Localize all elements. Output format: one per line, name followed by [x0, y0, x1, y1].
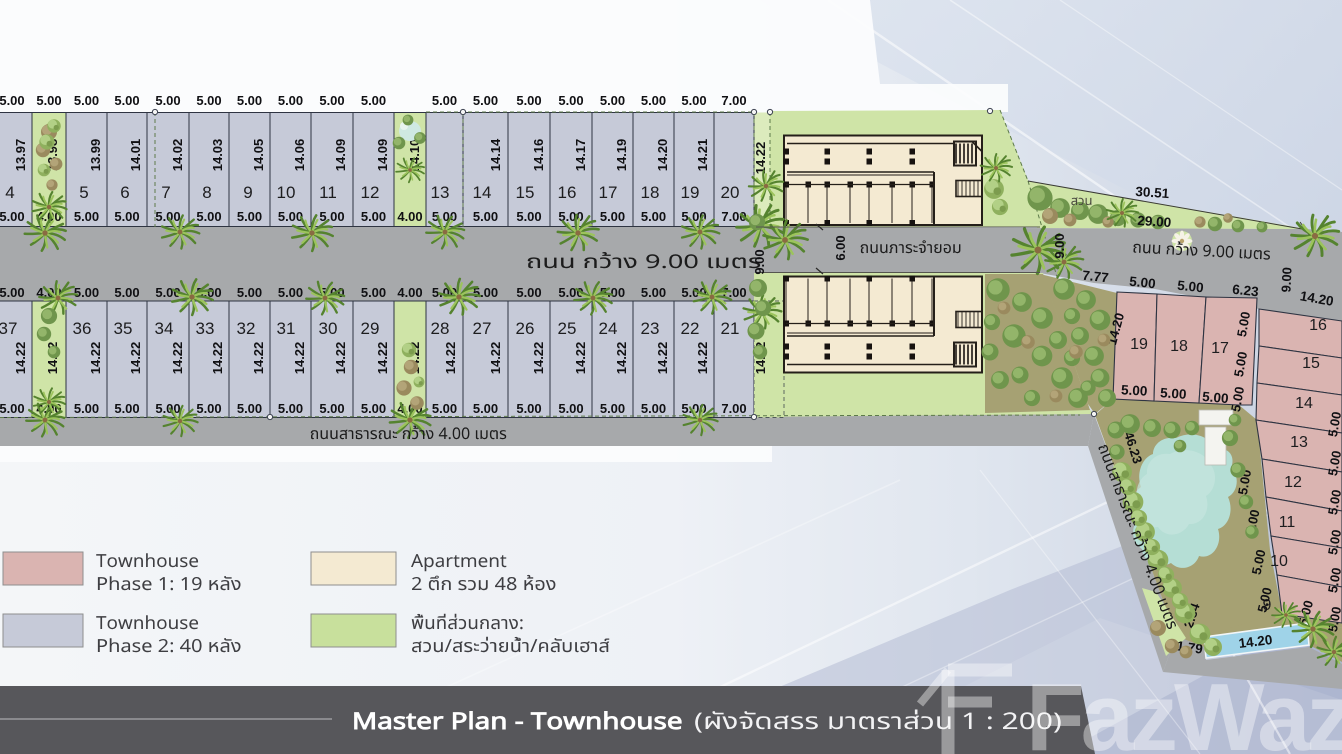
svg-text:11: 11: [319, 183, 337, 202]
svg-text:5.00: 5.00: [278, 285, 303, 300]
svg-text:14.14: 14.14: [488, 138, 503, 171]
svg-text:6.00: 6.00: [833, 235, 848, 260]
svg-text:5.00: 5.00: [361, 401, 386, 416]
svg-text:5.00: 5.00: [473, 93, 498, 108]
svg-text:5.00: 5.00: [361, 285, 386, 300]
svg-text:14.09: 14.09: [333, 139, 348, 172]
svg-text:30: 30: [319, 319, 338, 338]
svg-text:32: 32: [237, 319, 256, 338]
svg-text:5.00: 5.00: [74, 401, 99, 416]
svg-text:5.00: 5.00: [196, 401, 221, 416]
svg-text:14.02: 14.02: [170, 139, 185, 172]
svg-text:5.00: 5.00: [114, 209, 139, 224]
svg-text:5.00: 5.00: [237, 209, 262, 224]
svg-text:5.00: 5.00: [196, 93, 221, 108]
svg-text:6.23: 6.23: [1232, 282, 1260, 300]
svg-text:16: 16: [1309, 317, 1327, 334]
svg-text:5.00: 5.00: [432, 209, 457, 224]
svg-text:5.00: 5.00: [74, 209, 99, 224]
svg-text:9.00: 9.00: [752, 249, 767, 274]
svg-text:5.00: 5.00: [558, 401, 583, 416]
svg-text:5.00: 5.00: [114, 285, 139, 300]
svg-text:7.00: 7.00: [721, 93, 746, 108]
svg-text:14.22: 14.22: [443, 342, 458, 375]
svg-text:14.22: 14.22: [573, 342, 588, 375]
svg-text:5.00: 5.00: [516, 209, 541, 224]
svg-text:17: 17: [599, 183, 618, 202]
svg-text:29.00: 29.00: [1137, 213, 1172, 230]
svg-text:5.00: 5.00: [155, 209, 180, 224]
svg-text:5.00: 5.00: [319, 401, 344, 416]
svg-text:5.00: 5.00: [0, 285, 25, 300]
svg-text:5.00: 5.00: [641, 285, 666, 300]
svg-text:19: 19: [1130, 336, 1148, 353]
svg-text:12: 12: [1284, 474, 1302, 491]
svg-text:5.00: 5.00: [516, 93, 541, 108]
svg-text:10: 10: [277, 183, 296, 202]
svg-text:5.00: 5.00: [516, 401, 541, 416]
svg-text:30.51: 30.51: [1135, 184, 1170, 201]
svg-text:13.99: 13.99: [88, 139, 103, 172]
svg-text:14.22: 14.22: [292, 342, 307, 375]
svg-text:6: 6: [120, 183, 129, 202]
svg-text:14.22: 14.22: [695, 342, 710, 375]
svg-text:14.22: 14.22: [655, 342, 670, 375]
svg-text:27: 27: [473, 319, 492, 338]
svg-text:5.00: 5.00: [1202, 389, 1229, 406]
svg-text:14.22: 14.22: [88, 342, 103, 375]
svg-text:5.00: 5.00: [237, 285, 262, 300]
svg-text:18: 18: [641, 183, 660, 202]
svg-text:36: 36: [73, 319, 92, 338]
svg-text:24: 24: [599, 319, 618, 338]
svg-text:5.00: 5.00: [1160, 385, 1187, 402]
svg-text:19: 19: [681, 183, 700, 202]
svg-text:5.00: 5.00: [681, 93, 706, 108]
svg-text:14.20: 14.20: [655, 139, 670, 172]
svg-text:5.00: 5.00: [600, 209, 625, 224]
svg-text:7.77: 7.77: [1082, 268, 1110, 286]
svg-text:14: 14: [1295, 395, 1313, 412]
svg-text:5.00: 5.00: [641, 93, 666, 108]
svg-text:29: 29: [361, 319, 380, 338]
svg-text:4.00: 4.00: [397, 285, 422, 300]
svg-text:12: 12: [361, 183, 380, 202]
svg-text:5.00: 5.00: [237, 401, 262, 416]
svg-text:5.00: 5.00: [641, 209, 666, 224]
svg-text:5.00: 5.00: [558, 93, 583, 108]
svg-text:5.00: 5.00: [0, 401, 25, 416]
svg-text:5.00: 5.00: [319, 93, 344, 108]
svg-text:13: 13: [431, 183, 450, 202]
svg-text:9: 9: [243, 183, 252, 202]
svg-text:5.00: 5.00: [600, 401, 625, 416]
svg-text:5.00: 5.00: [0, 93, 25, 108]
svg-text:5.00: 5.00: [237, 93, 262, 108]
svg-text:5.00: 5.00: [278, 209, 303, 224]
svg-text:5.00: 5.00: [74, 285, 99, 300]
svg-text:5.00: 5.00: [1121, 382, 1148, 398]
svg-text:35: 35: [114, 319, 133, 338]
svg-text:5.00: 5.00: [36, 93, 61, 108]
svg-text:20: 20: [721, 183, 740, 202]
svg-text:5.00: 5.00: [473, 401, 498, 416]
svg-text:5.00: 5.00: [516, 285, 541, 300]
svg-text:14.22: 14.22: [375, 342, 390, 375]
svg-text:14.21: 14.21: [695, 139, 710, 172]
svg-text:14.22: 14.22: [170, 342, 185, 375]
svg-text:5.00: 5.00: [278, 401, 303, 416]
svg-text:14: 14: [473, 183, 492, 202]
svg-text:33: 33: [196, 319, 215, 338]
svg-text:5.00: 5.00: [114, 93, 139, 108]
svg-text:14.17: 14.17: [573, 139, 588, 172]
svg-text:14.09: 14.09: [375, 139, 390, 172]
svg-text:5.00: 5.00: [473, 209, 498, 224]
svg-text:5.00: 5.00: [361, 209, 386, 224]
svg-text:14.22: 14.22: [251, 342, 266, 375]
svg-text:14.06: 14.06: [292, 139, 307, 172]
svg-text:5.00: 5.00: [432, 93, 457, 108]
svg-text:5.00: 5.00: [0, 209, 25, 224]
svg-text:5.00: 5.00: [74, 93, 99, 108]
svg-text:5.00: 5.00: [114, 401, 139, 416]
svg-text:31: 31: [277, 319, 296, 338]
svg-text:14.03: 14.03: [210, 139, 225, 172]
svg-text:14.01: 14.01: [128, 139, 143, 172]
svg-text:34: 34: [155, 319, 174, 338]
svg-text:18: 18: [1170, 338, 1188, 355]
svg-text:28: 28: [431, 319, 450, 338]
svg-text:9.00: 9.00: [1052, 233, 1067, 258]
svg-text:14.22: 14.22: [488, 342, 503, 375]
svg-text:5.00: 5.00: [319, 209, 344, 224]
svg-text:5.00: 5.00: [278, 93, 303, 108]
svg-text:15: 15: [516, 183, 535, 202]
svg-text:5.00: 5.00: [361, 93, 386, 108]
svg-text:FazWaz: FazWaz: [1026, 664, 1342, 754]
svg-text:5.00: 5.00: [600, 93, 625, 108]
svg-text:26: 26: [516, 319, 535, 338]
svg-text:5.00: 5.00: [432, 401, 457, 416]
svg-text:14.22: 14.22: [13, 342, 28, 375]
svg-text:16: 16: [558, 183, 577, 202]
svg-text:14.22: 14.22: [531, 342, 546, 375]
svg-text:5.00: 5.00: [641, 401, 666, 416]
svg-text:21: 21: [721, 319, 740, 338]
svg-text:5.00: 5.00: [1177, 278, 1205, 296]
svg-text:23: 23: [641, 319, 660, 338]
svg-text:14.22: 14.22: [333, 342, 348, 375]
svg-text:7.00: 7.00: [721, 401, 746, 416]
svg-text:7: 7: [161, 183, 170, 202]
svg-text:11: 11: [1279, 514, 1296, 531]
svg-text:22: 22: [681, 319, 700, 338]
svg-text:5.00: 5.00: [155, 401, 180, 416]
svg-text:9.00: 9.00: [1278, 267, 1294, 293]
svg-text:5: 5: [79, 183, 88, 202]
svg-text:14.19: 14.19: [614, 139, 629, 172]
svg-text:13.97: 13.97: [13, 139, 28, 172]
svg-text:37: 37: [0, 319, 17, 338]
svg-text:5.00: 5.00: [1129, 274, 1157, 292]
svg-text:4: 4: [5, 183, 14, 202]
svg-text:4.00: 4.00: [397, 209, 422, 224]
svg-text:14.16: 14.16: [531, 139, 546, 172]
svg-text:14.22: 14.22: [753, 142, 768, 175]
svg-text:15: 15: [1302, 355, 1320, 372]
svg-text:14.05: 14.05: [251, 139, 266, 172]
svg-text:14.22: 14.22: [614, 342, 629, 375]
svg-text:14.22: 14.22: [128, 342, 143, 375]
svg-text:8: 8: [202, 183, 211, 202]
svg-text:5.00: 5.00: [196, 209, 221, 224]
svg-text:5.00: 5.00: [155, 93, 180, 108]
svg-text:17: 17: [1211, 340, 1229, 357]
svg-text:14.22: 14.22: [210, 342, 225, 375]
svg-text:25: 25: [558, 319, 577, 338]
svg-text:13: 13: [1290, 434, 1308, 451]
svg-text:10: 10: [1270, 553, 1288, 570]
